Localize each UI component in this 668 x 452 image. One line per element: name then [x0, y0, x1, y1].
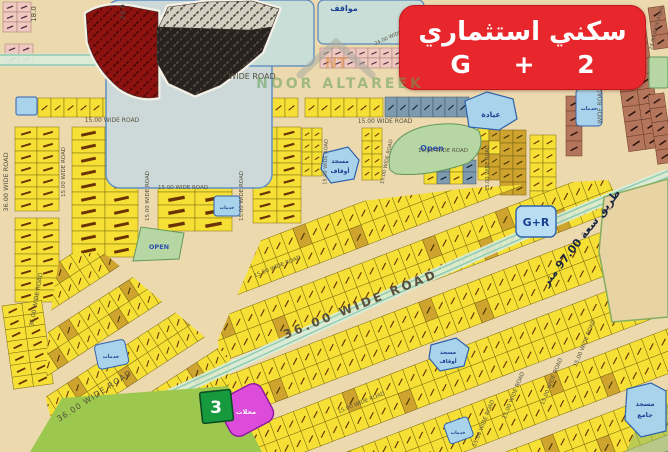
parcel-label: مسجد: [635, 400, 654, 408]
green-lot-right: [649, 57, 668, 88]
parcel-label: جامع: [637, 411, 653, 419]
parcel-label: أوقاف: [439, 357, 456, 365]
parcel-label: خدمات: [581, 106, 598, 112]
road-label: 15.00 WIDE ROAD: [239, 171, 245, 221]
road-label: 15.00 WIDE ROAD: [61, 147, 67, 197]
road-label: 15.00 WIDE ROAD: [485, 145, 491, 191]
plot-block: [362, 128, 382, 180]
road-label: 15.00 WIDE ROAD: [358, 118, 413, 125]
road-label: WIDE ROAD: [597, 88, 604, 124]
listing-map-image[interactable]: مواقفOpenOPENعيادةمسجدأوقافخدماتخدماتG+R…: [0, 0, 668, 452]
road-label: 24.0: [119, 4, 127, 20]
blue-lot-left: [16, 97, 37, 115]
parcel-label: 3: [210, 398, 222, 418]
plot-block: [15, 127, 59, 211]
parcel-label: OPEN: [149, 243, 169, 251]
road-label: 36.00 WIDE ROAD: [2, 152, 10, 211]
parcel-label: عيادة: [481, 110, 500, 119]
parcel-label: محلات: [236, 408, 256, 416]
watermark-monogram: NT: [325, 54, 349, 72]
parcel-label: أوقاف: [331, 167, 350, 175]
parcel-label: خدمات: [451, 431, 466, 436]
road-label: 15.00 WIDE ROAD: [418, 148, 468, 154]
parcel-label: خدمات: [103, 354, 120, 360]
parcel-label: خدمات: [220, 206, 235, 211]
road-label: WIDE ROAD: [228, 72, 275, 81]
parcel-label: مواقف: [330, 4, 358, 13]
badge-usage-type: سكني استثماري: [418, 15, 626, 49]
road-label: 15.00 WIDE ROAD: [145, 171, 151, 221]
parcel-label: مسجد: [331, 158, 349, 165]
plot-block: [305, 98, 383, 117]
plot-block: [385, 97, 469, 117]
badge-floors: G + 2: [450, 49, 594, 81]
listing-badge: سكني استثماري G + 2: [399, 5, 646, 90]
road-label: 18.0: [30, 6, 38, 22]
plot-block: [302, 128, 322, 176]
plot-block: [3, 2, 31, 32]
parcel-label: مسجد: [440, 350, 456, 356]
road-label: 15.00 WIDE ROAD: [158, 185, 208, 191]
parcel-label: G+R: [523, 216, 550, 229]
road-label: 15.00 WIDE ROAD: [85, 117, 140, 124]
